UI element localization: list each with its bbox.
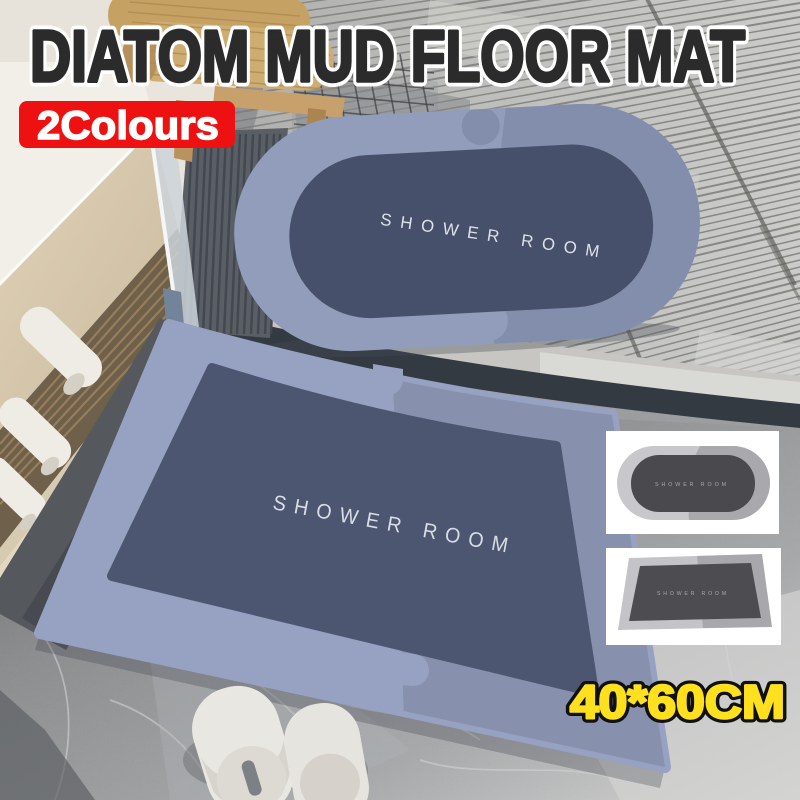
svg-text:2Colours: 2Colours xyxy=(37,104,219,148)
svg-text:DIATOM MUD FLOOR MAT: DIATOM MUD FLOOR MAT xyxy=(30,17,745,97)
svg-text:40*60CM: 40*60CM xyxy=(570,675,785,728)
svg-text:SHOWER ROOM: SHOWER ROOM xyxy=(655,482,729,488)
svg-text:SHOWER ROOM: SHOWER ROOM xyxy=(657,591,729,597)
